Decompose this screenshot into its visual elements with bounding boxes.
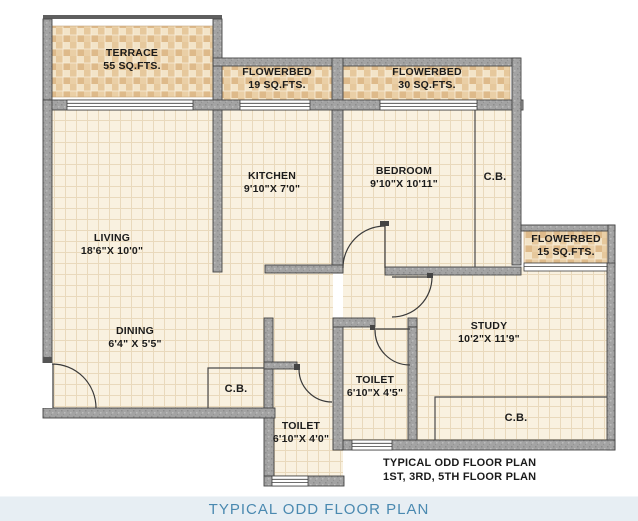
room-label-cb-bedroom: C.B. [484,171,507,184]
plan-annotation-line1: TYPICAL ODD FLOOR PLAN [383,457,536,471]
caption-bar: TYPICAL ODD FLOOR PLAN [0,496,638,521]
openings-layer [42,357,53,408]
room-label-cb-dining: C.B. [225,383,248,396]
room-label-cb-study: C.B. [505,412,528,425]
window-bedroom-flowerbed30 [380,100,477,110]
room-label-bedroom: BEDROOM 9'10"X 10'11" [370,165,438,191]
room-label-terrace: TERRACE 55 SQ.FTS. [103,47,160,73]
room-label-dining: DINING 6'4" X 5'5" [108,325,161,351]
floor-plan-page: TERRACE 55 SQ.FTS. FLOWERBED 19 SQ.FTS. … [0,0,638,521]
window-study-flowerbed15 [524,263,607,271]
window-living-terrace [67,100,193,110]
plan-annotation-line2: 1ST, 3RD, 5TH FLOOR PLAN [383,471,536,485]
entrance-opening [42,363,53,408]
window-toilet2 [272,476,308,486]
room-label-study: STUDY 10'2"X 11'9" [458,320,520,346]
window-toilet1 [352,440,392,450]
window-living-flowerbed19 [240,100,310,110]
caption-text: TYPICAL ODD FLOOR PLAN [209,501,430,518]
room-label-flowerbed-15: FLOWERBED 15 SQ.FTS. [531,233,600,259]
room-label-flowerbed-19: FLOWERBED 19 SQ.FTS. [242,66,311,92]
entrance-jamb [43,357,52,363]
plan-annotation: TYPICAL ODD FLOOR PLAN 1ST, 3RD, 5TH FLO… [383,457,536,484]
room-label-toilet-2: TOILET 6'10"X 4'0" [273,420,329,446]
room-label-kitchen: KITCHEN 9'10"X 7'0" [244,170,300,196]
room-label-flowerbed-30: FLOWERBED 30 SQ.FTS. [392,66,461,92]
terrace-railing [43,15,222,19]
room-label-toilet-1: TOILET 6'10"X 4'5" [347,374,403,400]
room-label-living: LIVING 18'6"X 10'0" [81,232,143,258]
